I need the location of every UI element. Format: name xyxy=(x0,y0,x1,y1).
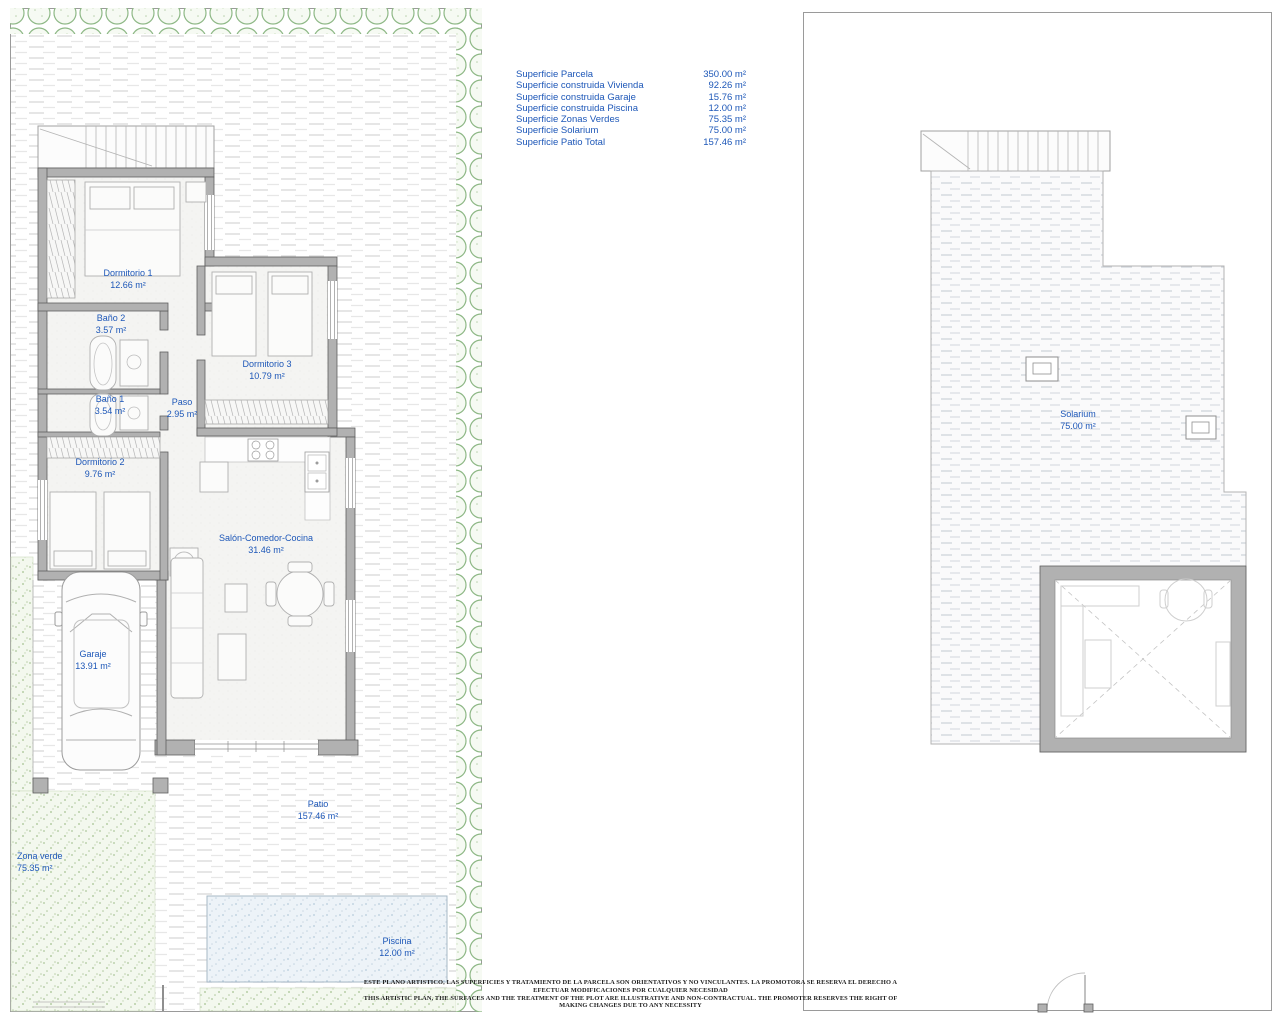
room-label-bano-2: Baño 23.57 m² xyxy=(96,313,127,336)
summary-value: 92.26 m² xyxy=(709,80,747,91)
sliding-door xyxy=(195,740,318,755)
car-mirror xyxy=(140,612,147,626)
room-label-zona-verde: Zona verde75.35 m² xyxy=(17,851,63,874)
summary-label: Superficie Parcela xyxy=(516,69,593,80)
room-label-dormitorio-3: Dormitorio 310.79 m² xyxy=(242,359,291,382)
summary-row: Superficie Solarium75.00 m² xyxy=(516,125,746,136)
car-mirror xyxy=(55,612,62,626)
summary-label: Superficie construida Vivienda xyxy=(516,80,644,91)
summary-row: Superficie construida Piscina12.00 m² xyxy=(516,103,746,114)
disclaimer-line-en: THIS ARTISTIC PLAN, THE SURFACES AND THE… xyxy=(363,995,898,1011)
room-label-solarium: Solarium75.00 m² xyxy=(1060,409,1096,432)
fridge xyxy=(200,462,228,492)
room-label-bano-1: Baño 13.54 m² xyxy=(95,394,126,417)
room-label-paso: Paso2.95 m² xyxy=(167,397,198,420)
staircase-exterior xyxy=(38,126,214,168)
summary-row: Superficie Zonas Verdes75.35 m² xyxy=(516,114,746,125)
nightstand xyxy=(186,182,206,202)
floorplan-sheet: Superficie Parcela350.00 m² Superficie c… xyxy=(0,0,1280,1024)
side-table xyxy=(225,584,247,612)
hob xyxy=(248,439,278,461)
kitchen-sink xyxy=(305,452,329,492)
summary-label: Superficie construida Piscina xyxy=(516,103,638,114)
roof-void xyxy=(1040,566,1246,752)
washbasin xyxy=(120,340,148,386)
zona-verde-main xyxy=(11,791,155,1011)
summary-label: Superficie Solarium xyxy=(516,125,598,136)
summary-row: Superficie construida Vivienda92.26 m² xyxy=(516,80,746,91)
disclaimer: ESTE PLANO ARTISTICO, LAS SUPERFICIES Y … xyxy=(363,979,898,1010)
room-label-piscina: Piscina12.00 m² xyxy=(379,936,415,959)
summary-value: 75.00 m² xyxy=(709,125,747,136)
room-label-patio: Patio157.46 m² xyxy=(298,799,339,822)
summary-value: 12.00 m² xyxy=(709,103,747,114)
dining-table xyxy=(277,571,323,617)
summary-value: 157.46 m² xyxy=(703,137,746,148)
summary-row: Superficie construida Garaje15.76 m² xyxy=(516,92,746,103)
zona-verde-strip xyxy=(11,557,33,791)
staircase-roof xyxy=(921,131,1110,171)
carport-pillar xyxy=(33,778,48,793)
tree-hedge-right xyxy=(456,8,482,1012)
tree-hedge-top xyxy=(10,8,482,34)
coffee-table xyxy=(218,634,246,680)
summary-row: Superficie Patio Total157.46 m² xyxy=(516,137,746,148)
ground-floor-plan xyxy=(10,8,482,1012)
room-label-garaje: Garaje13.91 m² xyxy=(75,649,111,672)
disclaimer-line-es: ESTE PLANO ARTISTICO, LAS SUPERFICIES Y … xyxy=(363,979,898,995)
room-label-salon: Salón-Comedor-Cocina31.46 m² xyxy=(219,533,313,556)
carport-pillar xyxy=(153,778,168,793)
room-label-dormitorio-2: Dormitorio 29.76 m² xyxy=(75,457,124,480)
summary-value: 350.00 m² xyxy=(703,69,746,80)
summary-value: 75.35 m² xyxy=(709,114,747,125)
summary-label: Superficie Zonas Verdes xyxy=(516,114,620,125)
plan-drawing xyxy=(0,0,1280,1024)
summary-label: Superficie Patio Total xyxy=(516,137,605,148)
summary-value: 15.76 m² xyxy=(709,92,747,103)
summary-label: Superficie construida Garaje xyxy=(516,92,636,103)
room-label-dormitorio-1: Dormitorio 112.66 m² xyxy=(103,268,152,291)
summary-row: Superficie Parcela350.00 m² xyxy=(516,69,746,80)
solarium-plan xyxy=(804,13,1272,1013)
surface-summary-table: Superficie Parcela350.00 m² Superficie c… xyxy=(516,69,746,148)
